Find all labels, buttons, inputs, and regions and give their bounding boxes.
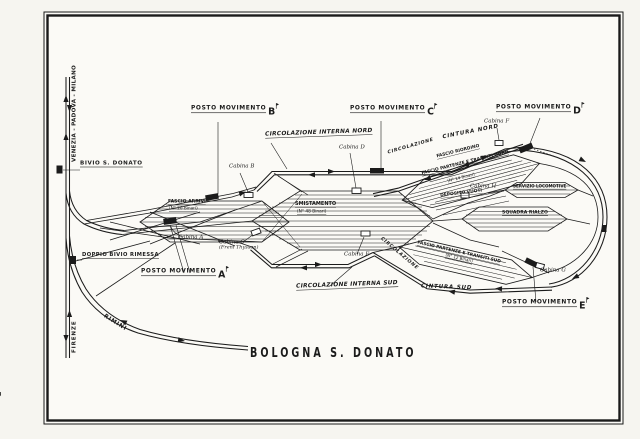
scanned-track-diagram-page: VENEZIA - PADOVA - MILANO BIVIO S. DONAT…: [0, 0, 640, 439]
flag-icon: [581, 102, 585, 108]
flag-icon: [435, 103, 439, 109]
flag-icon: [226, 266, 230, 272]
bivio-s-donato-label: BIVIO S. DONATO: [80, 160, 143, 167]
squadra-rialzo-label: SQUADRA RIALZO: [502, 210, 548, 216]
flag-icon: [276, 103, 280, 109]
cabina-b-label: Cabina B: [229, 163, 254, 169]
posto-movimento-e-label: POSTO MOVIMENTOE: [502, 299, 590, 307]
posto-movimento-b-label: POSTO MOVIMENTOB: [191, 105, 280, 113]
smistamento-tracks: (N° 48 Binari): [297, 209, 326, 215]
cabina-g-label: Cabina G: [540, 267, 566, 273]
cabina-d-label: Cabina D: [339, 144, 365, 150]
cabina-a-label: Cabina A: [178, 234, 203, 240]
cabina-e-label: Cabina E: [344, 251, 369, 257]
border-frame: [44, 12, 623, 424]
posto-movimento-a-label: POSTO MOVIMENTOA: [141, 268, 230, 276]
track-drawing: [0, 0, 640, 439]
fascio-arrivi-tracks: (N° 20 Binari): [169, 206, 198, 211]
doppio-bivio-label: DOPPIO BIVIO RIMESSA: [82, 252, 159, 259]
servizio-locomotive-label: SERVIZIO LOCOMOTIVE: [513, 184, 566, 189]
posto-movimento-d-label: POSTO MOVIMENTOD: [496, 104, 585, 112]
cabina-c-label: Cabina C (Freni Thyssen): [219, 239, 258, 250]
sorting-yard-fan: [252, 191, 433, 250]
north-bypass-and-belt: [254, 144, 556, 196]
destination-south-label: FIRENZE: [71, 320, 77, 353]
page-title: BOLOGNA S. DONATO: [250, 345, 417, 360]
posto-movimento-c-label: POSTO MOVIMENTOC: [350, 105, 438, 113]
cabina-f-label: Cabina F: [484, 118, 509, 124]
smistamento-label: SMISTAMENTO: [295, 201, 336, 208]
page-number: 3: [0, 391, 2, 397]
fascio-arrivi-label: FASCIO ARRIVI: [168, 199, 206, 205]
destination-north-label: VENEZIA - PADOVA - MILANO: [71, 65, 77, 162]
flag-icon: [586, 297, 590, 303]
